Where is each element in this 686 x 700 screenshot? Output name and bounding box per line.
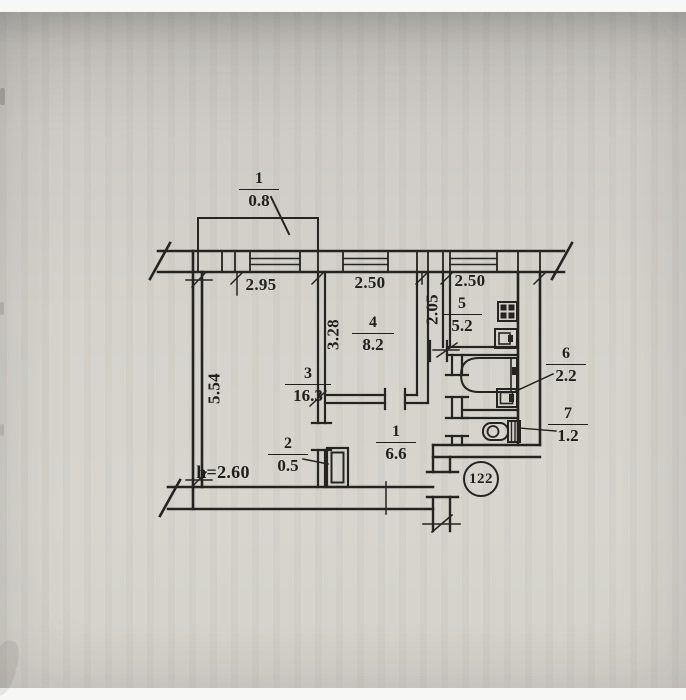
- living-room-label: 3 16.3: [285, 366, 331, 405]
- dimension-top-living: 2.95: [231, 276, 291, 293]
- kitchen-area: 5.2: [442, 315, 482, 336]
- living-room-area: 16.3: [285, 385, 331, 406]
- bathroom-wc-divider-wall: [462, 410, 518, 418]
- wc-label: 7 1.2: [548, 406, 588, 445]
- closet-number: 2: [268, 436, 308, 455]
- stove-icon: [498, 302, 517, 321]
- bedroom-number: 4: [352, 315, 394, 334]
- closet-label: 2 0.5: [268, 436, 308, 475]
- hallway-area: 6.6: [376, 443, 416, 464]
- bedroom-area: 8.2: [352, 334, 394, 355]
- bath-block-left-wall: [446, 355, 468, 445]
- bathtub-icon: [461, 358, 517, 392]
- dimension-top-kitchen: 2.50: [440, 272, 500, 289]
- apartment-number: 122: [461, 471, 501, 488]
- wc-area: 1.2: [548, 425, 588, 446]
- balcony-area: 0.8: [239, 190, 279, 211]
- kitchen-sink-icon: [495, 329, 517, 348]
- bathroom-number: 6: [546, 346, 586, 365]
- dimension-kitchen-depth: 2.05: [424, 288, 441, 332]
- hallway-number: 1: [376, 424, 416, 443]
- top-wall-joints: [198, 251, 540, 272]
- balcony-label: 1 0.8: [239, 171, 279, 210]
- balcony-number: 1: [239, 171, 279, 190]
- window-icon: [250, 259, 497, 265]
- hallway-label: 1 6.6: [376, 424, 416, 463]
- bathroom-label: 6 2.2: [546, 346, 586, 385]
- dimension-bedroom-depth: 3.28: [325, 313, 342, 357]
- living-room-number: 3: [285, 366, 331, 385]
- bedroom-label: 4 8.2: [352, 315, 394, 354]
- kitchen-label: 5 5.2: [442, 296, 482, 335]
- closet-area: 0.5: [268, 455, 308, 476]
- right-exterior-wall: [518, 272, 540, 445]
- ceiling-height-note: h=2.60: [176, 463, 270, 481]
- dimension-left-wall: 5.54: [206, 367, 223, 411]
- floor-plan-photo: 1 0.8 2.95 2.50 2.50 5.54 3.28 2.05 3 16…: [0, 0, 686, 700]
- bathroom-area: 2.2: [546, 365, 586, 386]
- bedroom-bottom-wall: [325, 389, 428, 409]
- southeast-wall: [433, 445, 540, 457]
- toilet-icon: [483, 421, 520, 442]
- kitchen-number: 5: [442, 296, 482, 315]
- wc-number: 7: [548, 406, 588, 425]
- dimension-top-bedroom: 2.50: [340, 274, 400, 291]
